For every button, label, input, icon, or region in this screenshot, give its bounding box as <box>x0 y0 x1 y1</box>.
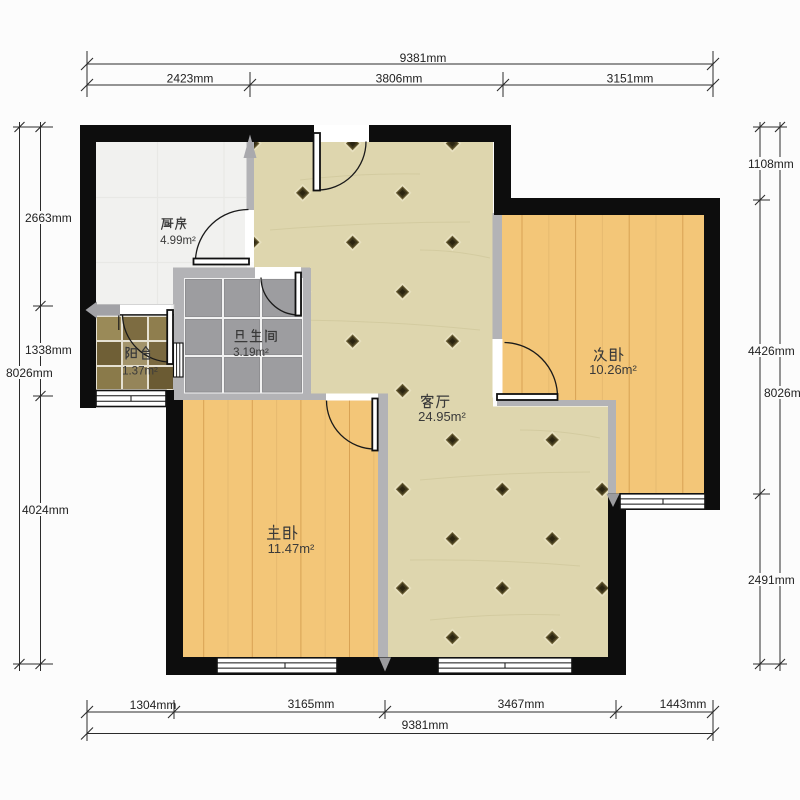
svg-text:8026mm: 8026mm <box>764 386 800 400</box>
svg-text:24.95m²: 24.95m² <box>418 409 466 424</box>
svg-text:1443mm: 1443mm <box>660 697 707 711</box>
svg-text:3467mm: 3467mm <box>498 697 545 711</box>
svg-text:4024mm: 4024mm <box>22 503 69 517</box>
svg-text:2491mm: 2491mm <box>748 573 795 587</box>
svg-text:3.19m²: 3.19m² <box>233 347 269 359</box>
svg-text:10.26m²: 10.26m² <box>589 362 637 377</box>
svg-text:8026mm: 8026mm <box>6 366 53 380</box>
svg-text:2663mm: 2663mm <box>25 211 72 225</box>
svg-text:1108mm: 1108mm <box>748 157 794 171</box>
svg-text:4426mm: 4426mm <box>748 344 795 358</box>
svg-text:1.37m²: 1.37m² <box>122 366 158 378</box>
svg-text:11.47m²: 11.47m² <box>268 541 315 556</box>
svg-text:4.99m²: 4.99m² <box>160 235 196 247</box>
svg-text:2423mm: 2423mm <box>167 72 214 86</box>
svg-text:3165mm: 3165mm <box>288 697 335 711</box>
svg-text:1338mm: 1338mm <box>25 343 72 357</box>
svg-text:1304mm: 1304mm <box>130 698 177 712</box>
svg-text:3806mm: 3806mm <box>376 72 423 86</box>
svg-text:3151mm: 3151mm <box>607 72 654 86</box>
svg-text:9381mm: 9381mm <box>400 51 447 65</box>
svg-text:9381mm: 9381mm <box>402 718 449 732</box>
